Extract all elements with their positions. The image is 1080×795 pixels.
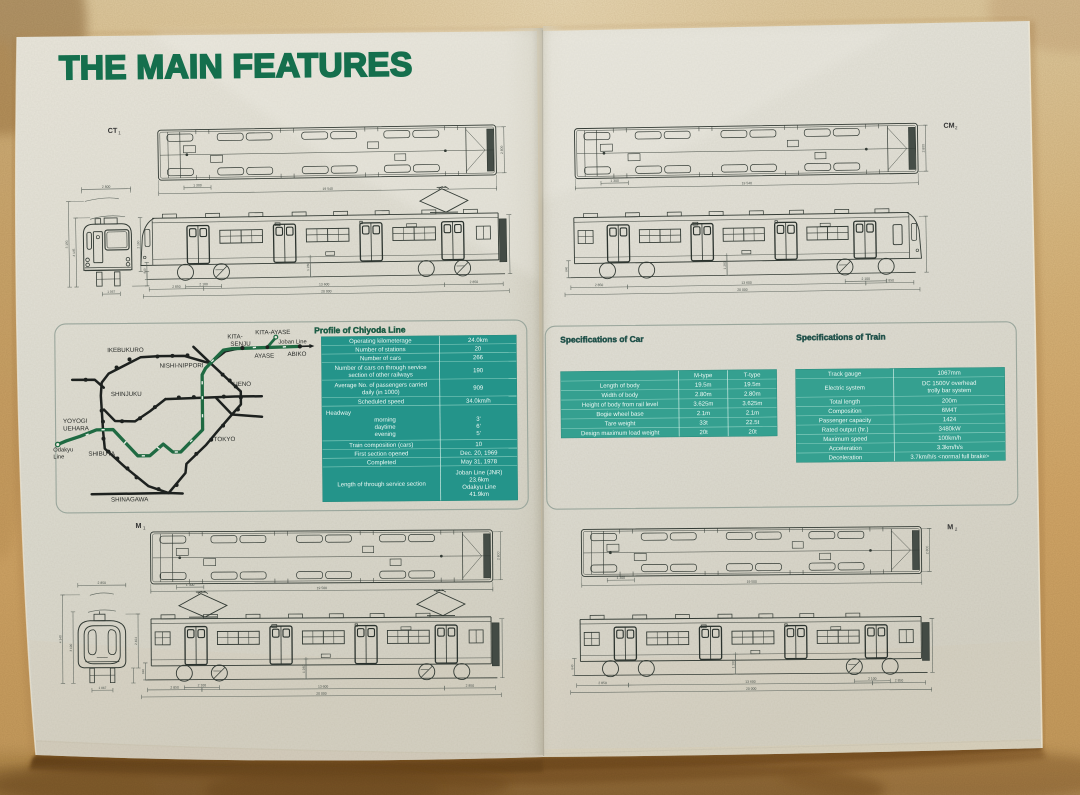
svg-text:19.5m: 19.5m [744, 382, 761, 388]
svg-text:1 280: 1 280 [723, 261, 727, 269]
svg-text:840: 840 [570, 664, 574, 669]
svg-text:Width of body: Width of body [601, 393, 638, 399]
svg-text:1 300: 1 300 [610, 179, 619, 183]
svg-text:TOKYO: TOKYO [214, 436, 236, 443]
svg-text:Average No. of passengers carr: Average No. of passengers carried [334, 382, 427, 389]
svg-text:section of other railways: section of other railways [348, 372, 412, 379]
svg-text:Design maximum load weight: Design maximum load weight [581, 430, 660, 437]
svg-text:2 850: 2 850 [895, 678, 904, 682]
svg-text:1 300: 1 300 [193, 183, 202, 187]
svg-text:2.80m: 2.80m [744, 392, 761, 398]
svg-text:20t: 20t [748, 430, 757, 436]
svg-text:34.0km/h: 34.0km/h [466, 399, 491, 405]
svg-text:1 280: 1 280 [306, 263, 310, 271]
svg-text:Deceleration: Deceleration [829, 455, 863, 461]
svg-text:M: M [947, 522, 953, 531]
svg-text:Train composition (cars): Train composition (cars) [349, 443, 413, 450]
svg-text:5’: 5’ [476, 431, 481, 437]
svg-text:2 850: 2 850 [470, 280, 479, 284]
svg-text:41.9km: 41.9km [469, 492, 489, 498]
svg-text:13 600: 13 600 [745, 680, 756, 684]
svg-text:UEHARA: UEHARA [63, 425, 90, 432]
svg-text:SHIBUYA: SHIBUYA [88, 451, 116, 458]
svg-text:Length of through service sect: Length of through service section [337, 482, 425, 489]
svg-text:2 100: 2 100 [199, 282, 208, 286]
svg-text:3 190: 3 190 [69, 643, 73, 651]
svg-text:SENJU: SENJU [230, 341, 250, 348]
svg-text:2.1m: 2.1m [697, 411, 710, 417]
svg-text:trolly bar system: trolly bar system [927, 388, 971, 394]
svg-text:4 145: 4 145 [72, 248, 76, 256]
svg-text:3 190: 3 190 [65, 240, 69, 248]
svg-text:2 850: 2 850 [170, 686, 179, 690]
svg-text:2 100: 2 100 [198, 683, 207, 687]
svg-text:2 850: 2 850 [595, 283, 604, 287]
svg-text:6’: 6’ [476, 424, 481, 430]
svg-text:13 600: 13 600 [741, 281, 752, 285]
svg-text:2 404: 2 404 [134, 637, 138, 645]
svg-text:2 850: 2 850 [598, 681, 607, 685]
svg-text:Specifications of Train: Specifications of Train [796, 331, 885, 342]
svg-text:NISHI-NIPPORI: NISHI-NIPPORI [160, 362, 204, 369]
svg-text:200m: 200m [942, 399, 957, 405]
svg-text:840: 840 [564, 266, 568, 271]
svg-text:Odakyu: Odakyu [53, 447, 73, 453]
svg-text:840: 840 [143, 268, 147, 273]
svg-text:Operating kilometerage: Operating kilometerage [349, 338, 412, 345]
svg-text:33t: 33t [699, 421, 708, 427]
svg-text:Odakyu Line: Odakyu Line [462, 485, 496, 491]
svg-text:20 000: 20 000 [316, 692, 327, 696]
svg-text:2 850: 2 850 [98, 581, 107, 585]
svg-text:2 850: 2 850 [886, 278, 895, 282]
svg-text:daytime: daytime [375, 425, 397, 431]
svg-text:UENO: UENO [233, 381, 251, 388]
svg-text:909: 909 [473, 386, 484, 392]
svg-text:May 31, 1978: May 31, 1978 [461, 459, 498, 465]
svg-text:1 067: 1 067 [107, 290, 115, 294]
svg-text:23.6km: 23.6km [469, 477, 489, 483]
svg-text:Line: Line [53, 454, 64, 460]
svg-text:SHINAGAWA: SHINAGAWA [111, 496, 149, 503]
svg-text:6M4T: 6M4T [942, 408, 958, 414]
svg-text:Acceleration: Acceleration [829, 446, 862, 452]
svg-text:CT: CT [108, 126, 118, 135]
svg-text:10: 10 [475, 442, 482, 448]
svg-text:YOYOGI: YOYOGI [63, 418, 88, 425]
svg-text:1424: 1424 [943, 417, 957, 423]
svg-text:morning: morning [374, 417, 396, 423]
svg-text:190: 190 [473, 368, 484, 374]
svg-text:Track gauge: Track gauge [828, 372, 862, 378]
svg-text:2 150: 2 150 [136, 240, 140, 248]
svg-text:T-type: T-type [744, 373, 761, 379]
svg-text:2 800: 2 800 [925, 546, 929, 555]
svg-text:2.80m: 2.80m [695, 392, 712, 398]
svg-text:2.1m: 2.1m [746, 411, 759, 417]
svg-text:IKEBUKURO: IKEBUKURO [107, 347, 144, 354]
svg-text:THE MAIN FEATURES: THE MAIN FEATURES [59, 47, 413, 88]
svg-text:Passenger capacity: Passenger capacity [819, 418, 871, 425]
svg-text:3.625m: 3.625m [693, 401, 713, 407]
svg-text:SHINJUKU: SHINJUKU [111, 391, 142, 398]
svg-text:Completed: Completed [367, 460, 396, 466]
svg-text:20: 20 [475, 347, 482, 353]
svg-text:AYASE: AYASE [254, 353, 274, 360]
svg-text:KITA-: KITA- [227, 333, 242, 340]
svg-text:Composition: Composition [828, 409, 861, 415]
svg-text:Number of cars: Number of cars [360, 356, 401, 362]
svg-text:1067mm: 1067mm [937, 371, 960, 377]
svg-text:2 850: 2 850 [172, 285, 181, 289]
svg-text:Length of body: Length of body [600, 383, 640, 389]
svg-text:2 800: 2 800 [921, 144, 925, 153]
svg-text:2 850: 2 850 [466, 684, 475, 688]
svg-text:20t: 20t [699, 430, 708, 436]
svg-text:Profile of Chiyoda Line: Profile of Chiyoda Line [314, 324, 406, 335]
svg-text:1 300: 1 300 [617, 576, 626, 580]
svg-text:840: 840 [141, 669, 145, 674]
svg-text:CM: CM [943, 121, 954, 130]
svg-text:2 800: 2 800 [102, 185, 111, 189]
svg-text:3.3km/h/s: 3.3km/h/s [937, 445, 963, 451]
svg-text:Bogie wheel base: Bogie wheel base [596, 412, 644, 418]
svg-text:DC 1500V overhead: DC 1500V overhead [922, 381, 976, 388]
svg-text:daily (in 1000): daily (in 1000) [362, 390, 400, 396]
svg-text:Rated output (hr.): Rated output (hr.) [822, 427, 869, 433]
svg-text:4 140: 4 140 [58, 635, 62, 643]
svg-text:13 600: 13 600 [319, 282, 330, 286]
svg-text:13 600: 13 600 [318, 685, 329, 689]
svg-text:20 000: 20 000 [746, 687, 757, 691]
svg-text:Dec. 20, 1969: Dec. 20, 1969 [460, 451, 498, 457]
svg-text:3’: 3’ [476, 417, 481, 423]
svg-text:Total length: Total length [830, 399, 861, 405]
svg-text:19 500: 19 500 [747, 580, 758, 584]
svg-text:1 280: 1 280 [731, 660, 735, 668]
svg-text:Scheduled speed: Scheduled speed [358, 399, 404, 405]
svg-text:Specifications of Car: Specifications of Car [560, 334, 644, 345]
svg-text:evening: evening [375, 432, 396, 438]
svg-text:2 100: 2 100 [868, 677, 877, 681]
svg-text:2 800: 2 800 [496, 551, 500, 560]
svg-text:22.5t: 22.5t [746, 420, 760, 426]
svg-text:19 540: 19 540 [742, 181, 753, 185]
svg-text:1 280: 1 280 [302, 665, 306, 673]
svg-text:20 000: 20 000 [321, 289, 332, 293]
svg-text:Number of stations: Number of stations [355, 347, 405, 353]
svg-text:Number of cars on through serv: Number of cars on through service [335, 365, 428, 372]
svg-text:1 067: 1 067 [98, 686, 106, 690]
svg-text:Height of body from rail level: Height of body from rail level [582, 402, 658, 409]
svg-text:Joban Line: Joban Line [278, 339, 306, 345]
svg-text:2 100: 2 100 [861, 277, 870, 281]
svg-text:First section opened: First section opened [354, 451, 408, 457]
svg-text:19 500: 19 500 [317, 586, 328, 590]
svg-text:19 540: 19 540 [322, 187, 333, 191]
svg-text:24.0km: 24.0km [468, 338, 488, 344]
svg-text:Tare weight: Tare weight [605, 421, 636, 427]
svg-text:M-type: M-type [694, 373, 713, 379]
svg-text:Headway: Headway [326, 411, 351, 417]
svg-text:266: 266 [473, 355, 484, 361]
svg-text:1 300: 1 300 [186, 583, 195, 587]
svg-text:Joban Line (JNR): Joban Line (JNR) [456, 470, 503, 476]
svg-text:Maximum speed: Maximum speed [823, 437, 867, 443]
svg-text:2 800: 2 800 [500, 145, 504, 154]
svg-text:M: M [135, 521, 141, 530]
svg-text:19.5m: 19.5m [695, 383, 712, 389]
svg-text:KITA-AYASE: KITA-AYASE [255, 329, 290, 336]
svg-text:20 000: 20 000 [737, 288, 748, 292]
svg-text:100km/h: 100km/h [938, 436, 961, 442]
svg-text:3.625m: 3.625m [742, 401, 762, 407]
svg-text:Electric system: Electric system [825, 385, 865, 391]
svg-text:3480kW: 3480kW [939, 426, 961, 432]
svg-text:3.7km/h/s <normal full brake>: 3.7km/h/s <normal full brake> [910, 454, 990, 461]
svg-text:ABIKO: ABIKO [287, 351, 306, 358]
